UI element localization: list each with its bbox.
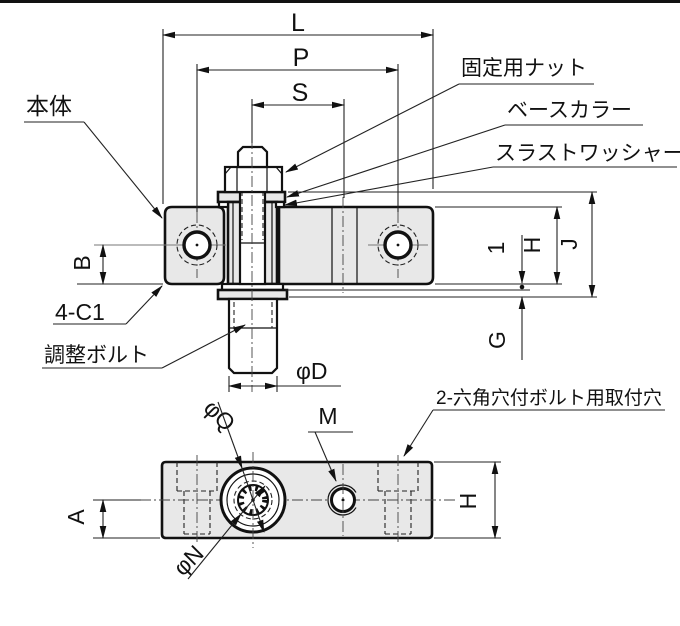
dim-A: A xyxy=(63,500,160,538)
dim-label-M: M xyxy=(318,403,337,429)
dim-label-G: G xyxy=(484,331,510,349)
dim-label-phi-D: φD xyxy=(296,358,328,384)
lock-nut xyxy=(225,167,282,192)
collar-lower-flange xyxy=(218,290,287,299)
technical-drawing: L P S B 1 xyxy=(0,0,680,626)
dim-label-phi-Q: φQ xyxy=(199,395,241,437)
dim-label-P: P xyxy=(293,44,310,72)
top-view: A H φQ φN M 2-六角穴付ボルト用取付穴 xyxy=(63,387,665,581)
label-mounting-holes: 2-六角穴付ボルト用取付穴 xyxy=(436,387,662,409)
label-body: 本体 xyxy=(26,93,72,119)
drawing-canvas: L P S B 1 xyxy=(0,0,680,626)
dim-label-B: B xyxy=(69,255,95,270)
dim-label-L: L xyxy=(291,9,305,37)
front-view: L P S B 1 xyxy=(24,9,680,392)
label-mounting-holes-group: 2-六角穴付ボルト用取付穴 xyxy=(404,387,665,456)
label-chamfer-group: 4-C1 xyxy=(53,286,162,325)
label-adjust-bolt-group: 調整ボルト xyxy=(42,325,245,368)
bolt-tip xyxy=(238,147,267,167)
dim-label-A: A xyxy=(63,509,89,525)
adjust-bolt-foot xyxy=(229,299,277,373)
dim-label-H-front: H xyxy=(519,237,545,254)
label-adjust-bolt: 調整ボルト xyxy=(44,344,149,367)
dim-H-front: H xyxy=(519,207,557,284)
label-body-group: 本体 xyxy=(24,93,162,218)
label-chamfer: 4-C1 xyxy=(55,299,105,325)
dim-label-H-top: H xyxy=(455,493,481,510)
label-thrust-washer: スラストワッシャー xyxy=(495,142,680,165)
dim-G: G xyxy=(484,297,522,360)
dim-B: B xyxy=(69,245,163,284)
dim-label-J: J xyxy=(556,238,582,250)
dim-label-S: S xyxy=(292,79,309,107)
dim-J: J xyxy=(556,192,592,297)
label-lock-nut: 固定用ナット xyxy=(461,57,587,80)
dim-label-1: 1 xyxy=(483,242,509,255)
label-base-collar: ベースカラー xyxy=(507,99,632,122)
